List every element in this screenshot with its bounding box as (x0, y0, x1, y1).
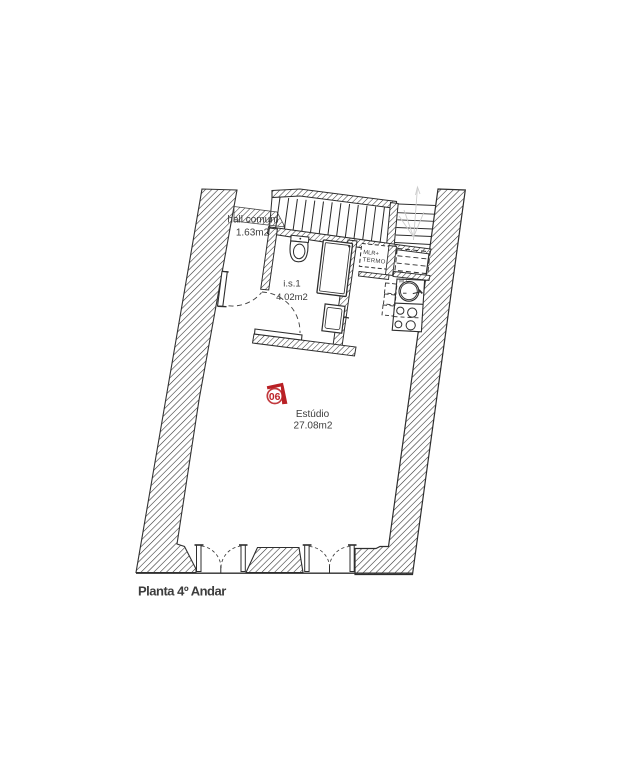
svg-text:MLL: MLL (399, 278, 409, 284)
svg-text:Estúdio: Estúdio (296, 409, 330, 420)
svg-text:hall comum: hall comum (227, 215, 278, 226)
svg-text:Planta 4º Andar: Planta 4º Andar (138, 583, 226, 598)
svg-text:1.63m2: 1.63m2 (236, 228, 270, 239)
svg-text:27.08m2: 27.08m2 (294, 421, 333, 432)
svg-text:06: 06 (269, 392, 281, 403)
svg-text:i.s.1: i.s.1 (283, 279, 300, 290)
svg-text:4.02m2: 4.02m2 (276, 292, 308, 303)
